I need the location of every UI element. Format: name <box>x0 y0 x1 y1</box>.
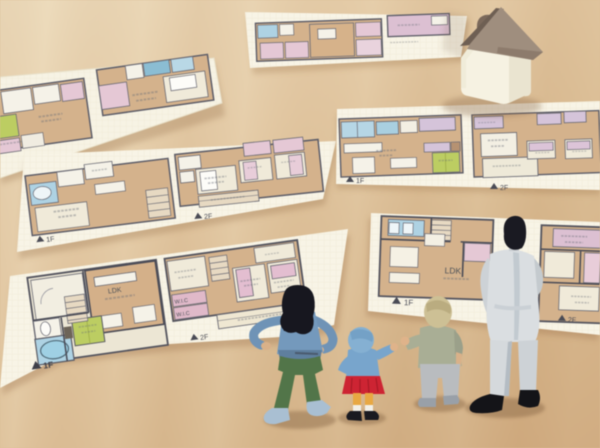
svg-text:2F: 2F <box>204 213 213 221</box>
svg-text:2F: 2F <box>568 317 576 324</box>
svg-text:1F: 1F <box>356 178 364 185</box>
svg-text:LDK: LDK <box>444 265 461 276</box>
svg-text:1F: 1F <box>404 298 414 307</box>
svg-text:1F: 1F <box>46 236 55 244</box>
svg-text:2F: 2F <box>500 185 508 192</box>
svg-text:1F: 1F <box>43 359 54 370</box>
svg-text:2F: 2F <box>200 334 209 342</box>
